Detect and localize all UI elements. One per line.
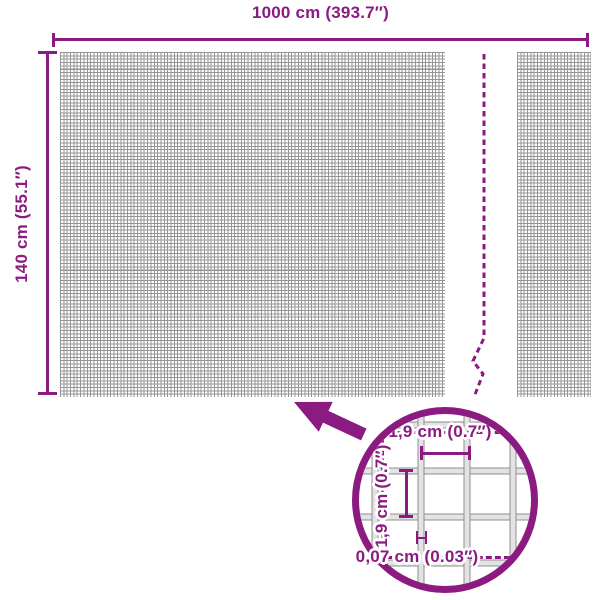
width-dimension-label: 1000 cm (393.7″) — [53, 3, 588, 23]
mesh-grid-right — [517, 52, 591, 397]
height-dimension-label: 140 cm (55.1″) — [12, 165, 32, 283]
height-dimension-line — [46, 52, 49, 395]
width-dimension-line — [53, 38, 588, 41]
mesh-height-tick-top — [399, 469, 413, 472]
width-dimension-tick-right — [586, 33, 589, 47]
wire-thickness-label: 0,07 cm (0.03″) — [356, 547, 479, 567]
mesh-height-label: 1,9 cm (0.7″) — [372, 444, 392, 547]
height-dimension-tick-bottom — [38, 392, 57, 395]
mesh-grid-main — [60, 52, 445, 397]
break-line — [473, 54, 484, 397]
width-dimension-tick-left — [52, 33, 55, 47]
height-dimension-tick-top — [38, 51, 57, 54]
mesh-height-tick-bottom — [399, 515, 413, 518]
mesh-width-tick-left — [420, 446, 423, 460]
product-dimension-diagram: 1000 cm (393.7″) 140 cm (55.1″) — [0, 0, 600, 600]
wire-thickness-crossbar — [416, 537, 428, 540]
mesh-width-tick-right — [468, 446, 471, 460]
mesh-width-dimension-line — [421, 452, 469, 455]
mesh-width-label: 1,9 cm (0.7″) — [388, 422, 491, 442]
mesh-height-dimension-line — [405, 470, 408, 517]
